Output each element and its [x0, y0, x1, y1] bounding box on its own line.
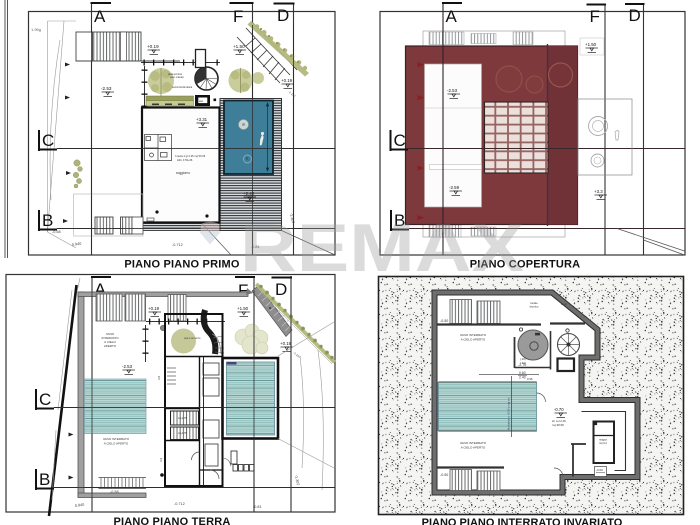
svg-text:soggiorno: soggiorno: [176, 171, 190, 175]
svg-text:VANO INTERRATO: VANO INTERRATO: [103, 437, 130, 441]
svg-text:+3.3: +3.3: [594, 189, 603, 194]
svg-text:0.940: 0.940: [75, 503, 85, 508]
svg-text:h testa 1 gt 2.05 mq 56.05: h testa 1 gt 2.05 mq 56.05: [175, 154, 206, 158]
svg-text:C: C: [394, 131, 406, 150]
svg-text:serra bioclimatica: serra bioclimatica: [172, 85, 193, 89]
svg-text:VANO INTERRATO: VANO INTERRATO: [460, 441, 487, 445]
svg-text:-0.58: -0.58: [110, 490, 119, 494]
svg-text:A CIELO APERTO: A CIELO APERTO: [461, 338, 486, 342]
svg-text:A: A: [94, 7, 106, 26]
svg-text:C: C: [39, 390, 51, 409]
svg-text:+1.50: +1.50: [233, 44, 245, 49]
svg-text:PIANO PIANO PRIMO: PIANO PIANO PRIMO: [124, 259, 239, 271]
svg-text:tecnico: tecnico: [530, 305, 539, 309]
svg-text:APERTO: APERTO: [104, 344, 117, 348]
svg-text:D: D: [629, 6, 641, 25]
svg-text:-0.00: -0.00: [596, 468, 603, 472]
svg-text:PIANO PIANO INTERRATO INVARIAT: PIANO PIANO INTERRATO INVARIATO: [422, 517, 623, 525]
svg-text:lucer.: lucer.: [561, 302, 567, 306]
svg-text:2.40: 2.40: [519, 376, 526, 380]
svg-text:-2.53: -2.53: [122, 364, 133, 369]
svg-text:B: B: [39, 470, 50, 489]
svg-text:A: A: [446, 7, 458, 26]
svg-text:B: B: [42, 211, 53, 230]
svg-text:+1.50: +1.50: [585, 42, 597, 47]
svg-text:0.96: 0.96: [527, 377, 533, 381]
svg-text:-2.53: -2.53: [101, 86, 112, 91]
svg-text:-0.70: -0.70: [554, 407, 564, 412]
svg-text:-0.81: -0.81: [253, 505, 262, 509]
svg-text:3.8: 3.8: [157, 375, 161, 380]
svg-text:-0.712: -0.712: [174, 502, 185, 506]
svg-text:-0.50: -0.50: [440, 473, 448, 477]
svg-text:+0.19: +0.19: [147, 44, 159, 49]
svg-text:PIANO PIANO TERRA: PIANO PIANO TERRA: [113, 516, 230, 525]
svg-text:mq 98.98: mq 98.98: [552, 423, 564, 427]
svg-text:+0.19: +0.19: [281, 78, 293, 83]
svg-text:-2.59: -2.59: [449, 185, 460, 190]
svg-text:A CIELO APERTO: A CIELO APERTO: [104, 442, 129, 446]
svg-text:+1.50: +1.50: [237, 306, 249, 311]
svg-text:mq 4.76: mq 4.76: [178, 432, 187, 435]
svg-text:-0.58: -0.58: [52, 230, 61, 234]
svg-text:-2.53: -2.53: [447, 88, 458, 93]
svg-text:-1.107: -1.107: [287, 90, 296, 99]
svg-text:F: F: [233, 7, 243, 26]
svg-text:-1.307: -1.307: [294, 474, 300, 485]
svg-text:F: F: [590, 7, 600, 26]
svg-text:A CIELO APERTO: A CIELO APERTO: [461, 446, 486, 450]
svg-text:-0.50: -0.50: [440, 319, 448, 323]
svg-text:C: C: [42, 131, 54, 150]
svg-text:3.9: 3.9: [159, 457, 163, 462]
svg-text:asc.: asc.: [199, 100, 204, 103]
svg-text:D: D: [277, 6, 289, 25]
svg-text:piano terrazzo: piano terrazzo: [184, 336, 201, 340]
svg-text:mq 4.76: mq 4.76: [178, 417, 187, 420]
svg-text:+0.19: +0.19: [280, 341, 292, 346]
svg-text:(.94): (.94): [520, 361, 526, 365]
svg-text:filo lastra a +0.50 y mq v.s.: filo lastra a +0.50 y mq v.s.: [507, 397, 511, 430]
svg-text:+3.31: +3.31: [196, 117, 208, 122]
svg-text:REMAX: REMAX: [240, 210, 524, 286]
svg-text:1.95g: 1.95g: [31, 27, 41, 32]
svg-text:-0.712: -0.712: [172, 243, 183, 247]
svg-text:Abit. 3.53+36: Abit. 3.53+36: [177, 158, 193, 162]
svg-text:VANO INTERRATO: VANO INTERRATO: [460, 333, 487, 337]
svg-text:mq 6.2: mq 6.2: [599, 441, 607, 445]
svg-text:+0.19: +0.19: [148, 306, 160, 311]
svg-text:0.940: 0.940: [72, 242, 82, 247]
svg-text:pam marato: pam marato: [170, 75, 184, 79]
